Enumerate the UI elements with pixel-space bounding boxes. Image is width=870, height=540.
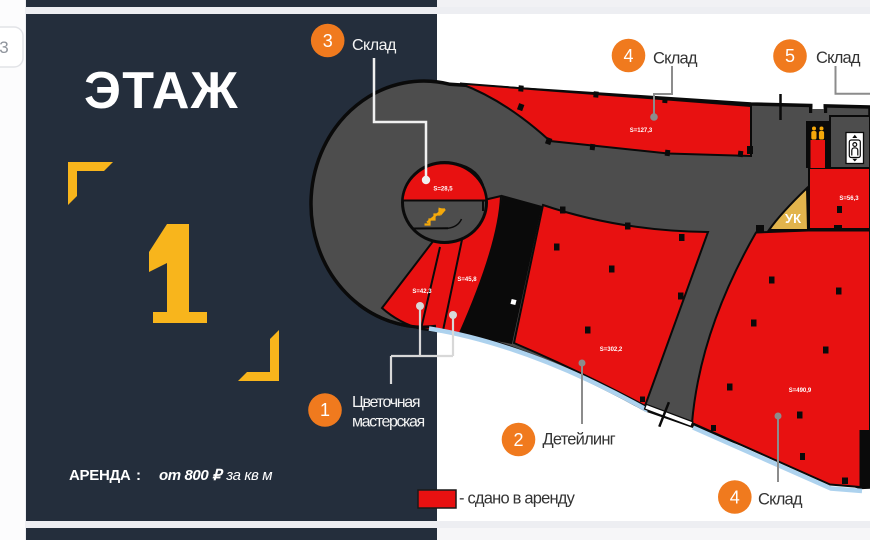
svg-text:УК: УК: [785, 211, 801, 226]
svg-text:Склад: Склад: [758, 491, 803, 509]
svg-text:S=42,3: S=42,3: [412, 289, 432, 295]
svg-text:S=490,9: S=490,9: [789, 388, 812, 394]
svg-text:от 800 ₽за кв м: от 800 ₽за кв м: [159, 467, 272, 484]
svg-text:3: 3: [323, 31, 333, 51]
svg-text:S=127,3: S=127,3: [630, 128, 653, 134]
svg-text:Детейлинг: Детейлинг: [543, 431, 616, 449]
svg-text:Склад: Склад: [352, 37, 397, 54]
svg-text:4: 4: [730, 488, 740, 508]
svg-text:АРЕНДА: АРЕНДА: [69, 467, 131, 484]
svg-text:мастерская: мастерская: [352, 414, 424, 431]
svg-text::: :: [136, 467, 141, 484]
svg-text:Склад: Склад: [816, 49, 861, 67]
svg-text:S=45,8: S=45,8: [457, 277, 477, 283]
svg-text:3: 3: [0, 38, 9, 57]
svg-text:S=28,5: S=28,5: [433, 187, 453, 193]
svg-text:5: 5: [785, 46, 795, 66]
svg-text:Склад: Склад: [653, 50, 698, 68]
svg-text:2: 2: [513, 430, 523, 450]
svg-text:S=56,3: S=56,3: [839, 196, 859, 202]
svg-text:ЭТАЖ: ЭТАЖ: [84, 62, 239, 120]
svg-text:- сдано в аренду: - сдано в аренду: [459, 490, 576, 508]
svg-text:Цветочная: Цветочная: [352, 394, 420, 411]
svg-text:4: 4: [623, 46, 633, 66]
svg-text:1: 1: [320, 400, 330, 420]
svg-text:S=302,2: S=302,2: [600, 347, 623, 353]
